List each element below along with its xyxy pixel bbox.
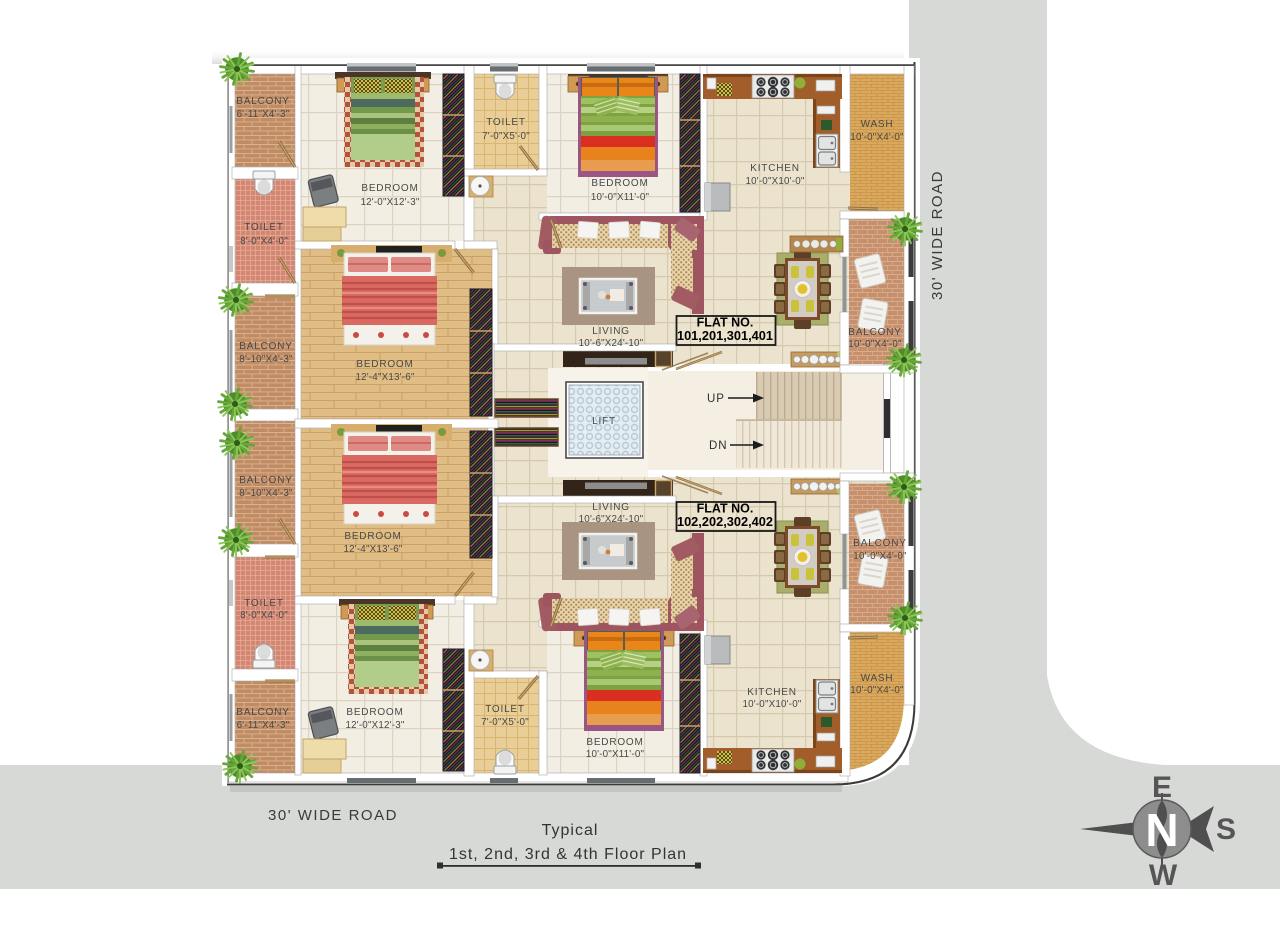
- svg-text:LIVING: LIVING: [592, 326, 630, 337]
- svg-text:LIFT: LIFT: [592, 416, 616, 427]
- svg-text:6'-11"X4'-3": 6'-11"X4'-3": [237, 720, 290, 731]
- svg-text:UP: UP: [707, 393, 725, 405]
- svg-text:BEDROOM: BEDROOM: [591, 178, 648, 189]
- svg-text:BEDROOM: BEDROOM: [356, 359, 413, 370]
- svg-text:10'-0"X4'-0": 10'-0"X4'-0": [853, 551, 907, 562]
- svg-text:7'-0"X5'-0": 7'-0"X5'-0": [482, 131, 530, 142]
- svg-text:KITCHEN: KITCHEN: [747, 687, 797, 698]
- svg-text:S: S: [1216, 813, 1236, 846]
- svg-text:12'-0"X12'-3": 12'-0"X12'-3": [360, 197, 419, 208]
- svg-text:Typical: Typical: [542, 822, 599, 839]
- svg-text:10'-0"X10'-0": 10'-0"X10'-0": [742, 699, 801, 710]
- svg-text:1st, 2nd, 3rd & 4th Floor Plan: 1st, 2nd, 3rd & 4th Floor Plan: [449, 846, 687, 863]
- svg-text:BEDROOM: BEDROOM: [344, 531, 401, 542]
- svg-text:TOILET: TOILET: [485, 704, 525, 715]
- svg-text:BALCONY: BALCONY: [853, 538, 906, 549]
- svg-text:N: N: [1145, 804, 1178, 856]
- svg-text:8'-10"X4'-3": 8'-10"X4'-3": [239, 488, 293, 499]
- svg-text:BEDROOM: BEDROOM: [586, 737, 643, 748]
- svg-text:WASH: WASH: [861, 673, 894, 684]
- svg-text:12'-4"X13'-6": 12'-4"X13'-6": [355, 372, 414, 383]
- svg-text:TOILET: TOILET: [244, 222, 284, 233]
- svg-text:10'-0"X10'-0": 10'-0"X10'-0": [745, 176, 804, 187]
- svg-text:30' WIDE ROAD: 30' WIDE ROAD: [929, 170, 946, 300]
- svg-text:BALCONY: BALCONY: [236, 96, 289, 107]
- svg-text:BALCONY: BALCONY: [848, 327, 901, 338]
- svg-text:12'-4"X13'-6": 12'-4"X13'-6": [343, 544, 402, 555]
- svg-text:8'-10"X4'-3": 8'-10"X4'-3": [239, 354, 293, 365]
- svg-text:BEDROOM: BEDROOM: [346, 707, 403, 718]
- svg-text:TOILET: TOILET: [486, 117, 526, 128]
- svg-text:102,202,302,402: 102,202,302,402: [677, 514, 773, 529]
- svg-text:12'-0"X12'-3": 12'-0"X12'-3": [345, 720, 404, 731]
- svg-text:10'-6"X24'-10": 10'-6"X24'-10": [579, 514, 644, 525]
- svg-text:BALCONY: BALCONY: [239, 341, 292, 352]
- svg-text:LIVING: LIVING: [592, 502, 630, 513]
- svg-text:10'-6"X24'-10": 10'-6"X24'-10": [579, 338, 644, 349]
- svg-text:BALCONY: BALCONY: [239, 475, 292, 486]
- svg-text:BALCONY: BALCONY: [236, 707, 289, 718]
- svg-text:30' WIDE ROAD: 30' WIDE ROAD: [268, 807, 398, 824]
- svg-text:10'-0"X11'-0": 10'-0"X11'-0": [591, 192, 650, 203]
- svg-text:BEDROOM: BEDROOM: [361, 183, 418, 194]
- svg-text:10'-0"X4'-0": 10'-0"X4'-0": [850, 132, 904, 143]
- svg-text:10'-0"X4'-0": 10'-0"X4'-0": [848, 339, 902, 350]
- svg-text:W: W: [1149, 859, 1178, 892]
- svg-text:TOILET: TOILET: [244, 598, 284, 609]
- svg-text:101,201,301,401: 101,201,301,401: [677, 328, 773, 343]
- svg-text:8'-0"X4'-0": 8'-0"X4'-0": [240, 236, 288, 247]
- svg-text:7'-0"X5'-0": 7'-0"X5'-0": [481, 717, 529, 728]
- svg-text:10'-0"X4'-0": 10'-0"X4'-0": [850, 685, 904, 696]
- svg-text:8'-0"X4'-0": 8'-0"X4'-0": [240, 610, 288, 621]
- svg-text:E: E: [1152, 771, 1172, 804]
- svg-text:WASH: WASH: [861, 119, 894, 130]
- svg-text:6'-11"X4'-3": 6'-11"X4'-3": [237, 109, 290, 120]
- svg-text:DN: DN: [709, 440, 728, 452]
- svg-text:KITCHEN: KITCHEN: [750, 163, 800, 174]
- svg-text:10'-0"X11'-0": 10'-0"X11'-0": [586, 749, 645, 760]
